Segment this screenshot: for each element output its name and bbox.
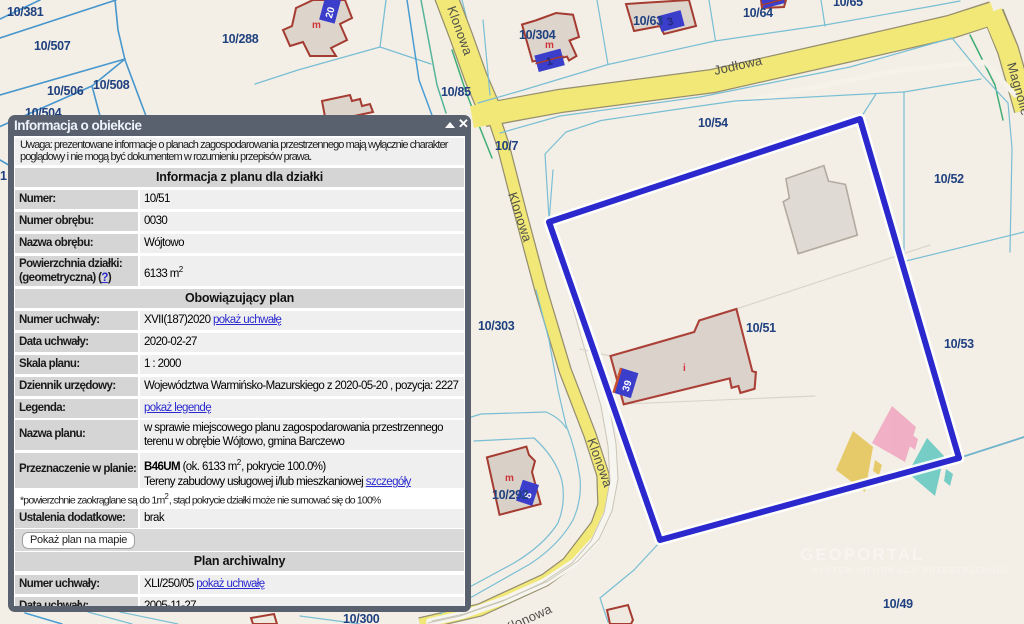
svg-text:m: m (505, 473, 514, 484)
svg-text:10/49: 10/49 (883, 597, 913, 611)
svg-text:10/300: 10/300 (343, 612, 380, 624)
svg-text:10/52: 10/52 (934, 172, 964, 186)
svg-text:10/63: 10/63 (633, 14, 663, 28)
svg-text:10/53: 10/53 (944, 337, 974, 351)
svg-text:10/64: 10/64 (743, 6, 773, 20)
svg-text:10/381: 10/381 (7, 5, 44, 19)
svg-text:10/507: 10/507 (34, 39, 71, 53)
svg-text:10/54: 10/54 (698, 116, 728, 130)
svg-text:10/288: 10/288 (222, 32, 259, 46)
svg-text:1: 1 (0, 169, 7, 183)
svg-text:10/65: 10/65 (833, 0, 863, 9)
svg-text:10/506: 10/506 (47, 84, 84, 98)
svg-text:10/303: 10/303 (478, 319, 515, 333)
svg-text:10/51: 10/51 (746, 321, 776, 335)
svg-text:10/85: 10/85 (441, 85, 471, 99)
svg-text:10/304: 10/304 (519, 28, 556, 42)
svg-text:10/7: 10/7 (495, 139, 518, 153)
svg-text:10/508: 10/508 (93, 78, 130, 92)
svg-text:10/292: 10/292 (492, 488, 529, 502)
svg-text:m: m (312, 20, 321, 31)
svg-text:i: i (683, 363, 686, 374)
svg-text:SYSTEM INFORMACJI PRZESTRZENNE: SYSTEM INFORMACJI PRZESTRZENNEJ (812, 565, 1009, 575)
svg-text:GEOPORTAL: GEOPORTAL (800, 545, 924, 564)
